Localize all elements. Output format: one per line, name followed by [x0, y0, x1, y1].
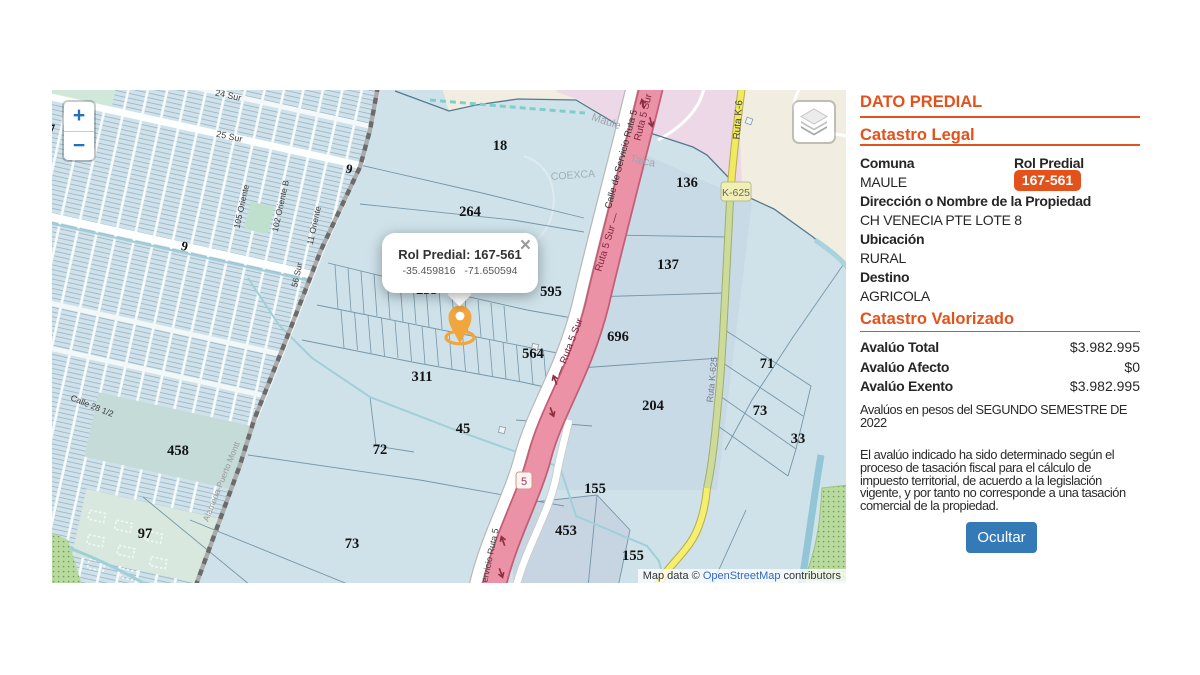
svg-text:155: 155 — [622, 548, 644, 564]
svg-text:136: 136 — [676, 175, 698, 191]
svg-text:453: 453 — [555, 523, 577, 539]
svg-text:73: 73 — [753, 403, 768, 419]
svg-text:564: 564 — [522, 346, 544, 362]
svg-text:311: 311 — [412, 369, 433, 385]
svg-text:595: 595 — [540, 284, 562, 300]
svg-text:137: 137 — [657, 257, 679, 273]
svg-text:264: 264 — [459, 204, 481, 220]
svg-text:K-625: K-625 — [722, 187, 750, 199]
svg-text:155: 155 — [584, 481, 606, 497]
svg-text:73: 73 — [345, 536, 360, 552]
svg-text:71: 71 — [760, 356, 775, 372]
svg-text:97: 97 — [138, 526, 153, 542]
svg-text:5: 5 — [521, 476, 527, 488]
svg-text:204: 204 — [642, 398, 664, 414]
svg-text:45: 45 — [456, 421, 471, 437]
svg-text:33: 33 — [791, 431, 806, 447]
svg-text:18: 18 — [493, 138, 508, 154]
svg-text:72: 72 — [373, 442, 388, 458]
svg-text:696: 696 — [607, 329, 629, 345]
svg-text:458: 458 — [167, 443, 189, 459]
svg-text:17: 17 — [52, 122, 55, 138]
